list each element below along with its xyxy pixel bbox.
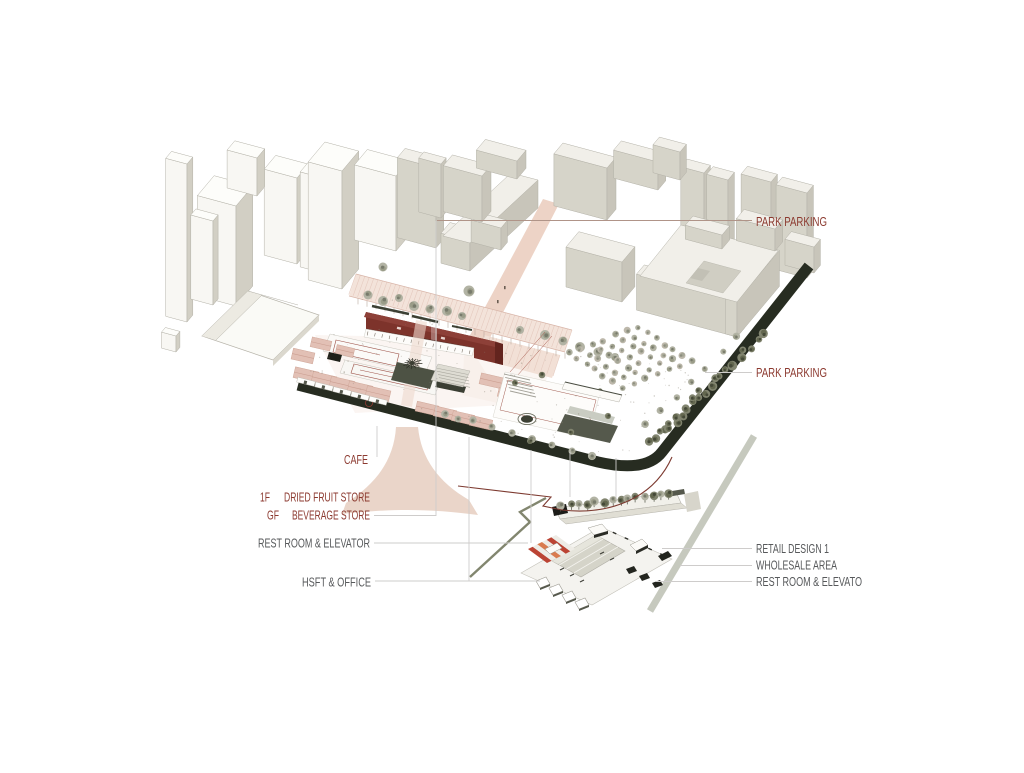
- svg-text:REST ROOM & ELEVATO: REST ROOM & ELEVATO: [756, 574, 862, 589]
- svg-text:PARK PARKING: PARK PARKING: [756, 214, 827, 229]
- svg-text:RETAIL DESIGN 1: RETAIL DESIGN 1: [756, 541, 829, 556]
- svg-text:1F: 1F: [260, 490, 270, 505]
- svg-text:REST ROOM & ELEVATOR: REST ROOM & ELEVATOR: [258, 536, 370, 551]
- svg-text:GF: GF: [267, 508, 279, 523]
- svg-text:PARK PARKING: PARK PARKING: [756, 365, 827, 380]
- svg-text:DRIED FRUIT STORE: DRIED FRUIT STORE: [284, 490, 370, 505]
- svg-text:HSFT & OFFICE: HSFT & OFFICE: [302, 575, 371, 590]
- svg-text:CAFE: CAFE: [344, 452, 368, 467]
- svg-text:BEVERAGE STORE: BEVERAGE STORE: [292, 508, 370, 523]
- svg-text:WHOLESALE AREA: WHOLESALE AREA: [756, 558, 837, 573]
